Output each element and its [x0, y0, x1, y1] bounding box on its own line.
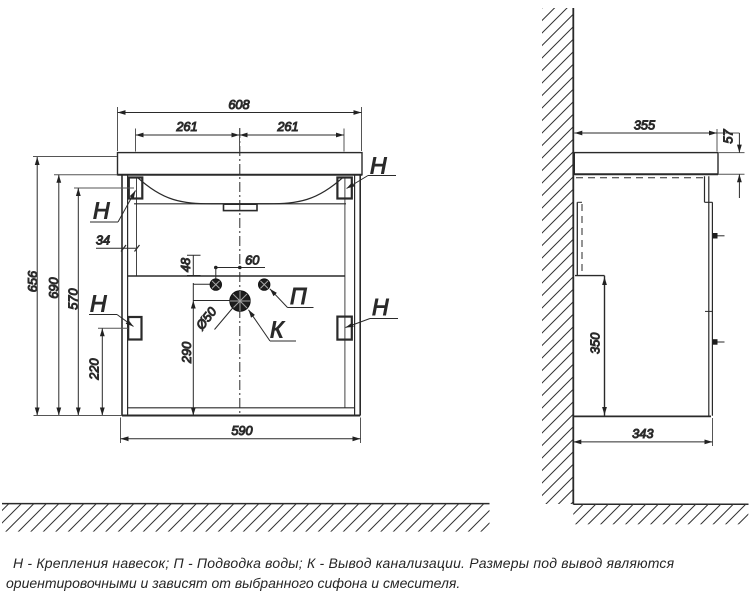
- svg-text:570: 570: [65, 287, 80, 309]
- svg-text:Н: Н: [372, 294, 389, 320]
- svg-text:ориентировочными и зависят от: ориентировочными и зависят от выбранного…: [6, 575, 460, 591]
- svg-text:261: 261: [175, 119, 197, 134]
- svg-text:60: 60: [245, 253, 260, 268]
- svg-text:690: 690: [46, 276, 61, 298]
- svg-text:Н: Н: [370, 153, 387, 179]
- svg-text:290: 290: [179, 341, 194, 364]
- svg-text:350: 350: [587, 332, 602, 354]
- svg-text:34: 34: [96, 233, 110, 248]
- svg-text:Н: Н: [93, 198, 110, 224]
- svg-text:220: 220: [86, 357, 101, 380]
- svg-text:57: 57: [720, 129, 735, 144]
- svg-text:48: 48: [178, 257, 193, 272]
- svg-text:Н - Крепления навесок; П - Под: Н - Крепления навесок; П - Подводка воды…: [13, 555, 675, 571]
- svg-text:608: 608: [228, 97, 250, 112]
- svg-text:Н: Н: [90, 291, 107, 317]
- svg-text:343: 343: [632, 426, 653, 441]
- svg-text:355: 355: [634, 118, 656, 133]
- svg-text:590: 590: [231, 423, 253, 438]
- svg-text:П: П: [290, 283, 307, 309]
- svg-text:656: 656: [25, 270, 40, 292]
- svg-text:К: К: [270, 317, 285, 343]
- svg-text:261: 261: [276, 119, 298, 134]
